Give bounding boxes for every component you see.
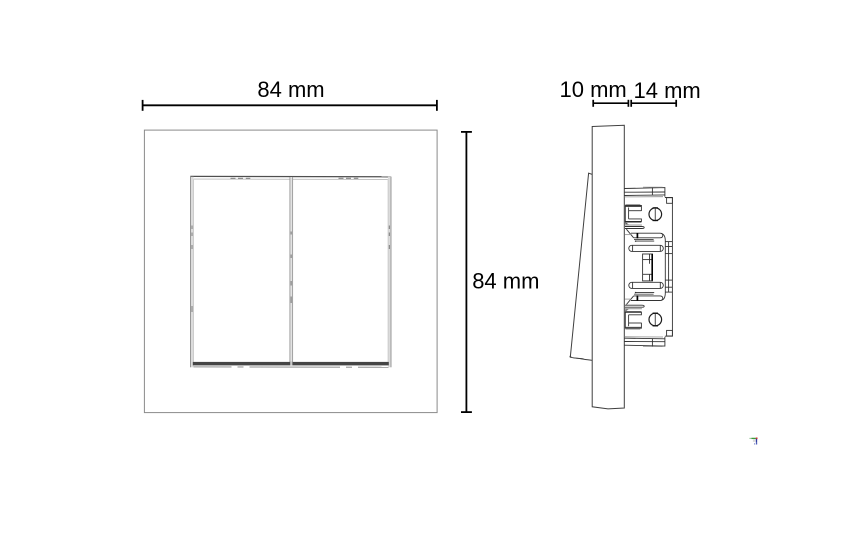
svg-text:10 mm: 10 mm [560,77,627,102]
svg-text:84 mm: 84 mm [257,77,324,102]
svg-text:84 mm: 84 mm [472,269,539,294]
svg-text:14 mm: 14 mm [634,78,701,103]
